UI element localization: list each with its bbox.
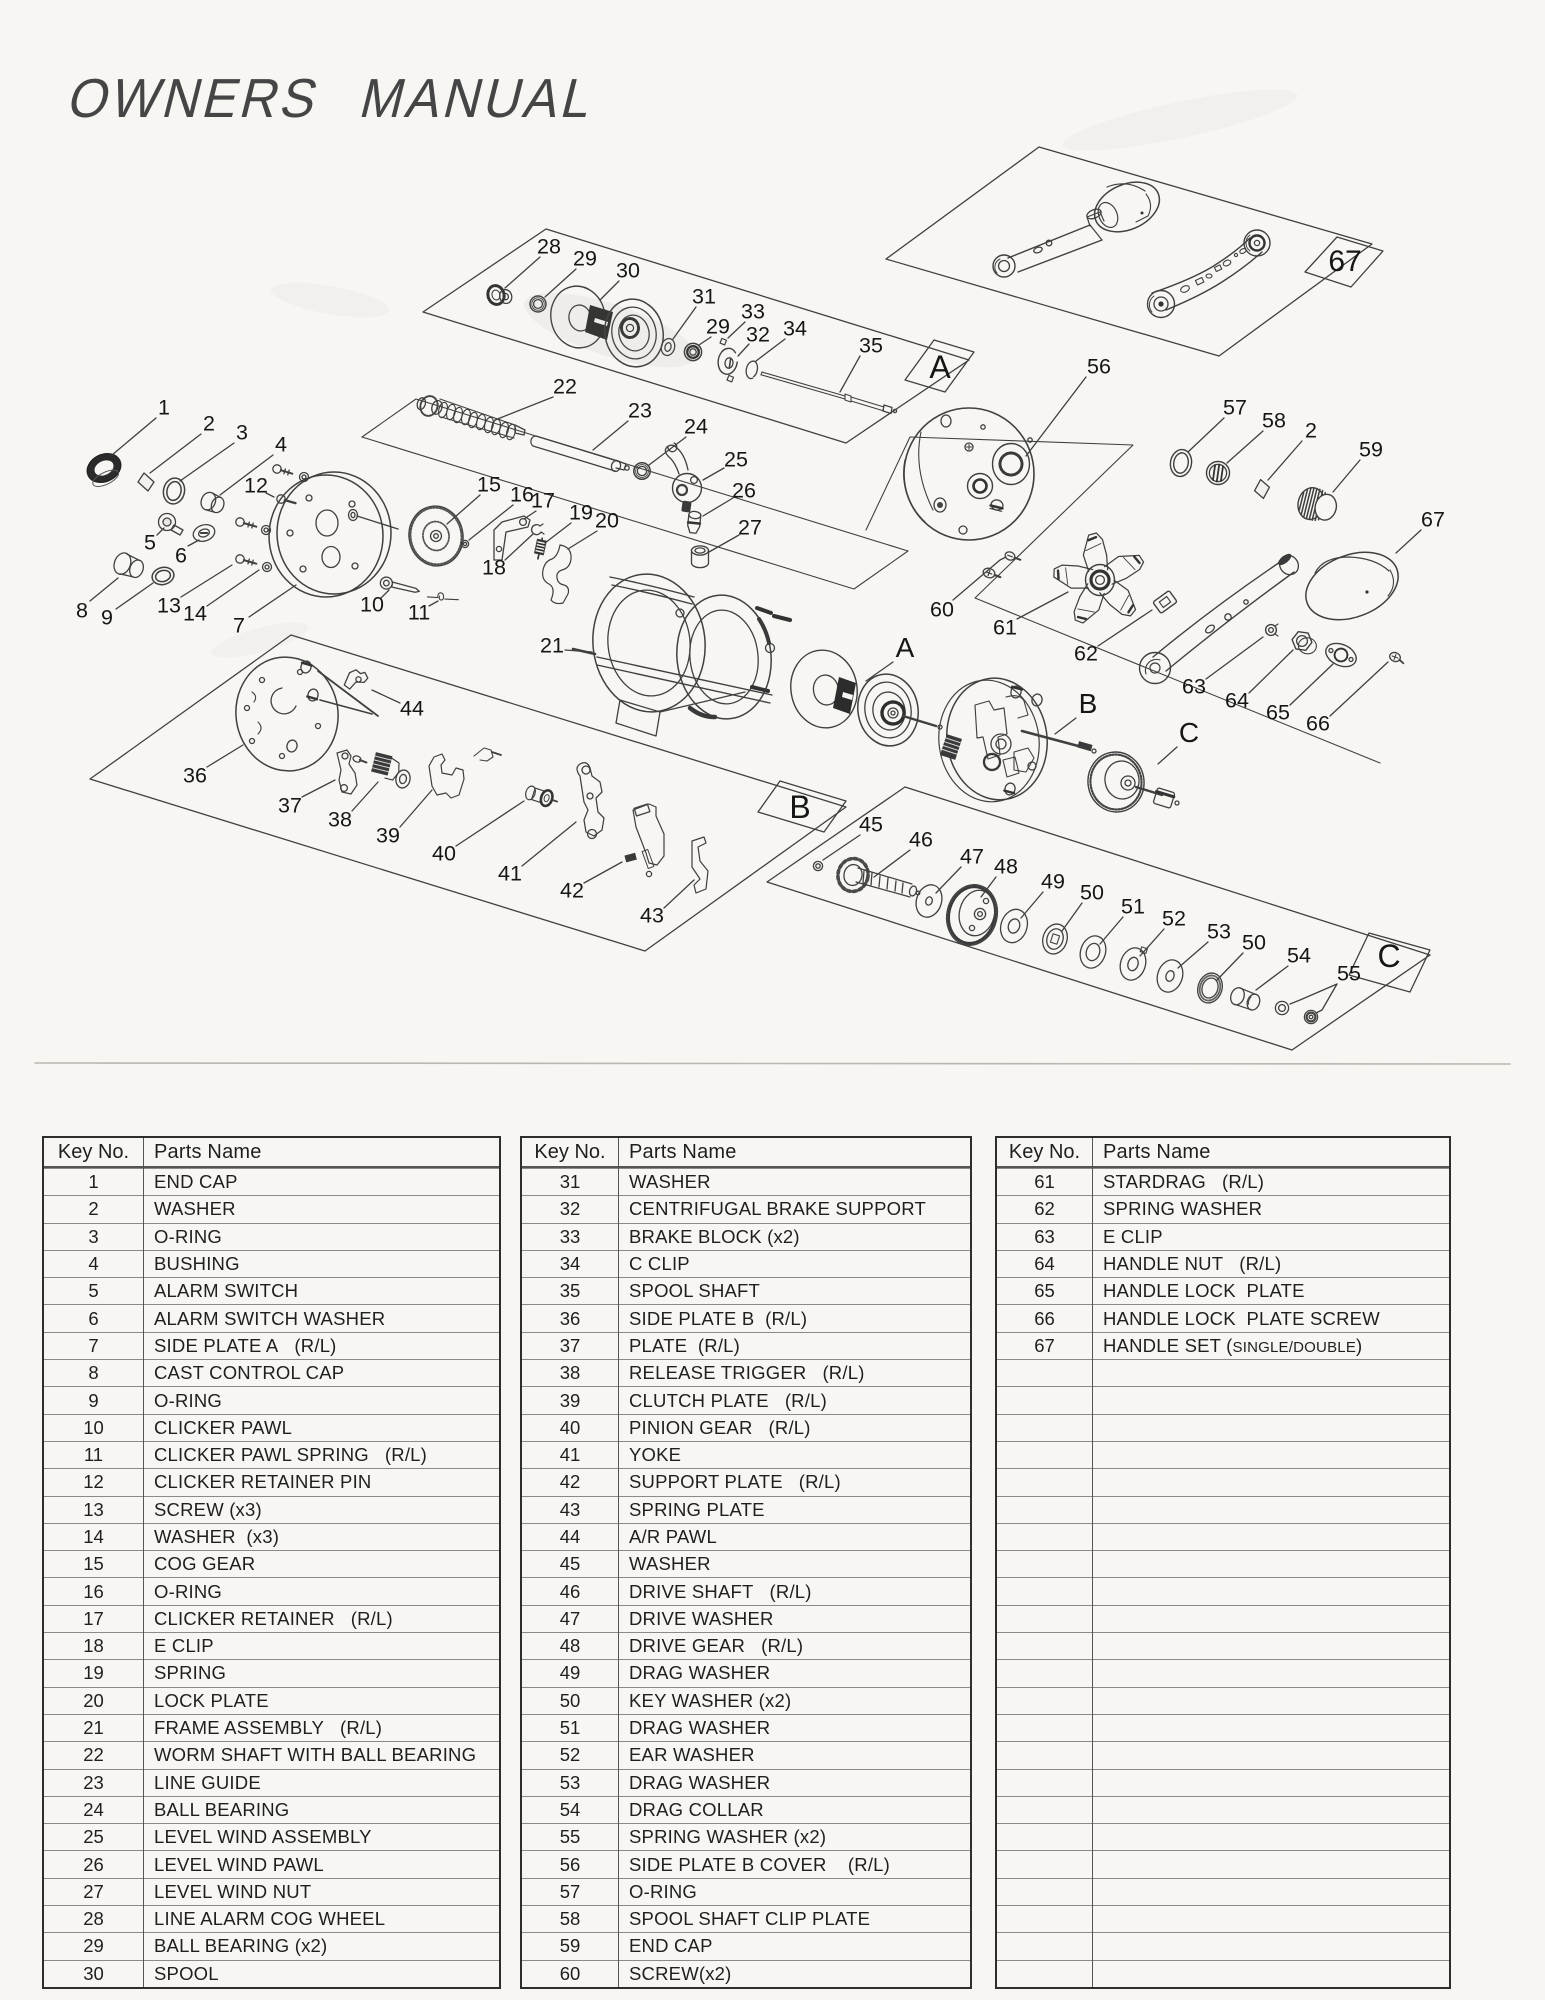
- svg-text:23: 23: [628, 399, 652, 423]
- svg-text:41: 41: [498, 862, 522, 886]
- svg-text:53: 53: [1207, 920, 1231, 944]
- svg-text:2: 2: [1305, 419, 1317, 443]
- svg-text:B: B: [1079, 688, 1098, 719]
- svg-text:13: 13: [157, 594, 181, 618]
- svg-text:C: C: [1377, 938, 1400, 974]
- svg-text:58: 58: [1262, 409, 1286, 433]
- svg-text:4: 4: [275, 433, 287, 457]
- svg-text:36: 36: [183, 764, 207, 788]
- svg-text:33: 33: [741, 300, 765, 324]
- svg-text:22: 22: [553, 375, 577, 399]
- svg-text:57: 57: [1223, 396, 1247, 420]
- svg-text:A: A: [929, 349, 951, 385]
- svg-text:56: 56: [1087, 355, 1111, 379]
- svg-text:40: 40: [432, 842, 456, 866]
- svg-text:5: 5: [144, 531, 156, 555]
- svg-text:8: 8: [76, 599, 88, 623]
- svg-text:12: 12: [244, 474, 268, 498]
- svg-text:2: 2: [203, 412, 215, 436]
- svg-text:26: 26: [732, 479, 756, 503]
- svg-text:66: 66: [1306, 712, 1330, 736]
- svg-text:19: 19: [569, 501, 593, 525]
- svg-text:50: 50: [1242, 931, 1266, 955]
- svg-text:62: 62: [1074, 642, 1098, 666]
- svg-text:20: 20: [595, 509, 619, 533]
- svg-text:10: 10: [360, 593, 384, 617]
- svg-text:29: 29: [573, 247, 597, 271]
- svg-text:6: 6: [175, 544, 187, 568]
- svg-text:67: 67: [1328, 245, 1361, 278]
- svg-text:55: 55: [1337, 962, 1361, 986]
- svg-text:59: 59: [1359, 438, 1383, 462]
- svg-text:21: 21: [540, 634, 564, 658]
- svg-text:14: 14: [183, 602, 207, 626]
- svg-text:61: 61: [993, 616, 1017, 640]
- svg-text:54: 54: [1287, 944, 1311, 968]
- svg-text:39: 39: [376, 824, 400, 848]
- svg-text:38: 38: [328, 808, 352, 832]
- svg-text:45: 45: [859, 813, 883, 837]
- svg-text:C: C: [1179, 717, 1199, 748]
- svg-text:9: 9: [101, 606, 113, 630]
- svg-text:46: 46: [909, 828, 933, 852]
- svg-text:65: 65: [1266, 701, 1290, 725]
- svg-text:67: 67: [1421, 508, 1445, 532]
- svg-text:B: B: [789, 789, 810, 825]
- svg-text:47: 47: [960, 845, 984, 869]
- svg-text:42: 42: [560, 879, 584, 903]
- svg-text:64: 64: [1225, 689, 1249, 713]
- svg-text:25: 25: [724, 448, 748, 472]
- svg-text:48: 48: [994, 855, 1018, 879]
- svg-text:27: 27: [738, 516, 762, 540]
- svg-text:15: 15: [477, 473, 501, 497]
- svg-text:A: A: [896, 632, 915, 663]
- svg-text:18: 18: [482, 556, 506, 580]
- svg-text:34: 34: [783, 317, 807, 341]
- svg-text:50: 50: [1080, 881, 1104, 905]
- svg-text:37: 37: [278, 794, 302, 818]
- svg-text:17: 17: [531, 489, 555, 513]
- svg-text:35: 35: [859, 334, 883, 358]
- svg-text:60: 60: [930, 598, 954, 622]
- svg-text:24: 24: [684, 415, 708, 439]
- svg-text:3: 3: [236, 421, 248, 445]
- svg-text:28: 28: [537, 235, 561, 259]
- svg-text:31: 31: [692, 285, 716, 309]
- svg-text:43: 43: [640, 904, 664, 928]
- svg-text:32: 32: [746, 323, 770, 347]
- svg-text:1: 1: [158, 396, 170, 420]
- svg-text:49: 49: [1041, 870, 1065, 894]
- svg-text:52: 52: [1162, 907, 1186, 931]
- svg-text:44: 44: [400, 697, 424, 721]
- svg-text:29: 29: [706, 315, 730, 339]
- svg-text:51: 51: [1121, 895, 1145, 919]
- svg-text:11: 11: [408, 601, 430, 625]
- svg-text:63: 63: [1182, 675, 1206, 699]
- svg-text:30: 30: [616, 259, 640, 283]
